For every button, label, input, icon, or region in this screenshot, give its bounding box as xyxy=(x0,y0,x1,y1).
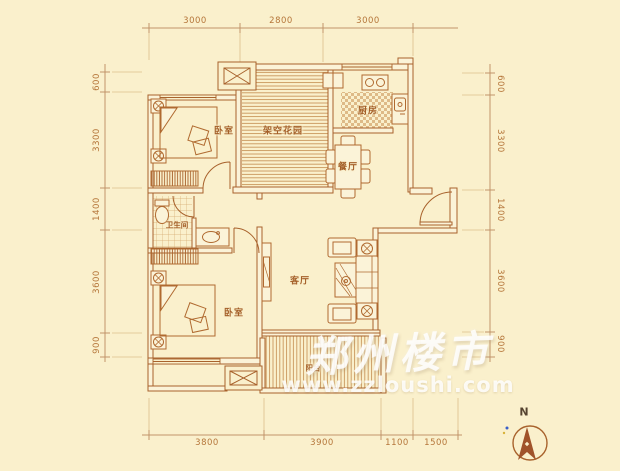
yellow-dot xyxy=(503,432,505,434)
watermark-url: www.zzloushi.com xyxy=(281,373,514,397)
room-label-bedroom1: 卧室 xyxy=(214,124,234,137)
dim-right-4: 3600 xyxy=(495,269,505,293)
compass xyxy=(503,426,547,460)
dim-top-1: 3000 xyxy=(183,16,207,26)
vanity-sink xyxy=(196,228,229,246)
dim-left-5: 900 xyxy=(92,336,102,354)
floorplan-drawing xyxy=(0,0,620,471)
floorplan-page: 3000 2800 3000 3800 3900 1100 1500 600 3… xyxy=(0,0,620,471)
room-label-garden: 架空花园 xyxy=(263,124,303,137)
dim-top-3: 3000 xyxy=(356,16,380,26)
compass-north-label: N xyxy=(519,406,528,419)
dim-right-3: 1400 xyxy=(495,198,505,222)
dim-bottom-3: 1100 xyxy=(385,438,409,448)
bedroom1-furniture xyxy=(151,99,217,186)
dim-bottom-1: 3800 xyxy=(195,438,219,448)
blue-dot xyxy=(506,427,509,430)
room-label-kitchen: 厨房 xyxy=(358,104,378,117)
bedroom2-furniture xyxy=(151,249,215,349)
dim-right-5: 900 xyxy=(495,335,505,353)
dim-left-4: 3600 xyxy=(92,270,102,294)
dim-left-3: 1400 xyxy=(92,197,102,221)
room-label-dining: 餐厅 xyxy=(338,160,358,173)
living-room-furniture xyxy=(262,238,378,323)
dim-right-2: 3300 xyxy=(495,129,505,153)
dim-top-2: 2800 xyxy=(269,16,293,26)
room-label-living: 客厅 xyxy=(290,274,310,287)
dim-left-1: 600 xyxy=(92,73,102,91)
dim-bottom-4: 1500 xyxy=(424,438,448,448)
room-label-bathroom: 卫生间 xyxy=(166,220,189,231)
dim-right-1: 600 xyxy=(495,75,505,93)
room-label-bedroom2: 卧室 xyxy=(224,306,244,319)
dim-bottom-2: 3900 xyxy=(310,438,334,448)
dim-left-2: 3300 xyxy=(92,128,102,152)
